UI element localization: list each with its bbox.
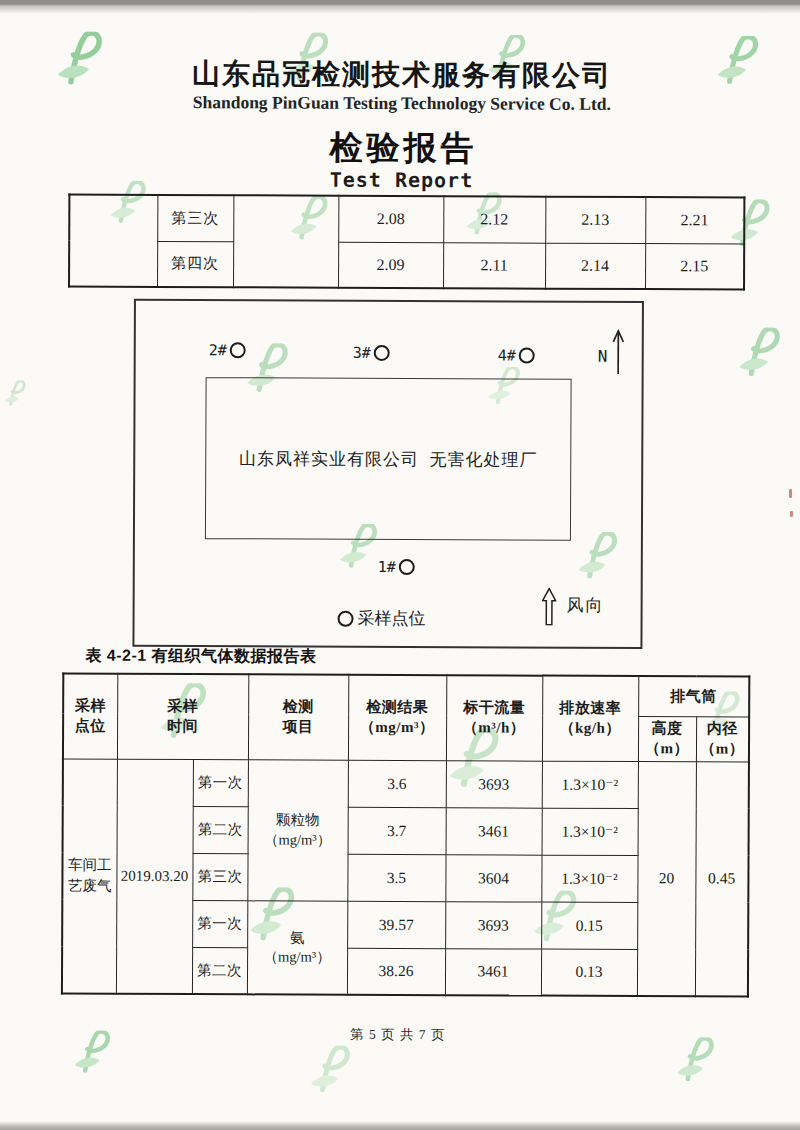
sample-point-4: 4# bbox=[498, 346, 535, 364]
sample-point-3: 3# bbox=[353, 344, 390, 362]
value-cell: 2.09 bbox=[338, 242, 443, 288]
gas-data-table: 采样 点位 采样 时间 检测 项目 检测结果 （mg/m³） 标干流量 （m³/… bbox=[61, 673, 750, 998]
result-cell: 3.7 bbox=[348, 807, 446, 854]
run-cell: 第一次 bbox=[192, 900, 247, 947]
sample-point-label: 2# bbox=[209, 341, 227, 359]
run-label-cell: 第三次 bbox=[157, 195, 233, 241]
sample-point-circle-icon bbox=[399, 559, 415, 575]
stack-diameter-cell: 0.45 bbox=[695, 761, 749, 996]
stack-height-cell: 20 bbox=[637, 761, 696, 996]
run-label-cell: 第四次 bbox=[157, 241, 233, 287]
legend-circle-icon bbox=[338, 610, 354, 626]
wind-direction-arrow-icon bbox=[542, 588, 557, 626]
date-cell: 2019.03.20 bbox=[116, 759, 193, 994]
value-cell: 2.08 bbox=[338, 196, 443, 242]
result-cell: 39.57 bbox=[347, 901, 445, 948]
result-cell: 38.26 bbox=[347, 948, 445, 995]
header-flow: 标干流量 （m³/h） bbox=[446, 675, 542, 760]
legend-label: 采样点位 bbox=[358, 607, 426, 630]
rate-cell: 0.13 bbox=[541, 949, 637, 996]
header-stack: 排气筒 bbox=[638, 676, 749, 716]
item-cell: 颗粒物 （mg/m³） bbox=[247, 759, 348, 900]
flow-cell: 3693 bbox=[445, 901, 541, 948]
result-cell: 3.6 bbox=[348, 760, 446, 807]
value-cell: 2.12 bbox=[443, 196, 545, 242]
north-label: N bbox=[598, 347, 608, 366]
sample-point-circle-icon bbox=[519, 348, 535, 364]
item-cell: 氨 （mg/m³） bbox=[247, 900, 347, 994]
sample-point-2: 2# bbox=[209, 341, 246, 359]
header-sample-time: 采样 时间 bbox=[117, 674, 248, 760]
header-stack-height: 高度 （m） bbox=[638, 716, 696, 761]
report-title-cn: 检验报告 bbox=[2, 124, 800, 172]
empty-cell bbox=[233, 195, 338, 287]
sample-point-label: 4# bbox=[498, 346, 516, 364]
factory-outline: 山东凤祥实业有限公司 无害化处理厂 bbox=[205, 377, 572, 541]
table-row: 第三次 2.08 2.12 2.13 2.21 bbox=[69, 195, 744, 244]
scan-speck bbox=[789, 489, 792, 498]
sample-point-cell: 车间工艺废气 bbox=[62, 759, 117, 994]
legend-sampling-point: 采样点位 bbox=[338, 607, 426, 630]
flow-cell: 3461 bbox=[445, 948, 541, 995]
run-cell: 第一次 bbox=[193, 759, 248, 806]
wind-direction-label: 风向 bbox=[567, 594, 605, 617]
run-cell: 第三次 bbox=[192, 853, 247, 900]
run-cell: 第二次 bbox=[193, 806, 248, 853]
sample-point-circle-icon bbox=[230, 342, 246, 358]
table-row: 车间工艺废气 2019.03.20 第一次 颗粒物 （mg/m³） 3.6 36… bbox=[63, 759, 749, 809]
continuation-table: 第三次 2.08 2.12 2.13 2.21 第四次 2.09 2.11 2.… bbox=[68, 194, 745, 291]
run-cell: 第二次 bbox=[192, 947, 247, 994]
value-cell: 2.15 bbox=[645, 243, 744, 289]
page-number: 第 5 页 共 7 页 bbox=[0, 1024, 798, 1045]
sample-point-circle-icon bbox=[374, 345, 390, 361]
header-item: 检测 项目 bbox=[248, 674, 348, 759]
report-title-en: Test Report bbox=[1, 166, 800, 193]
value-cell: 2.13 bbox=[545, 197, 645, 243]
table-caption: 表 4-2-1 有组织气体数据报告表 bbox=[85, 646, 316, 668]
flow-cell: 3461 bbox=[446, 807, 542, 854]
rate-cell: 1.3×10⁻² bbox=[541, 855, 637, 902]
header-sample-point: 采样 点位 bbox=[63, 674, 117, 759]
sample-point-1: 1# bbox=[378, 558, 415, 576]
table-row: 第四次 2.09 2.11 2.14 2.15 bbox=[69, 241, 744, 290]
flow-cell: 3604 bbox=[445, 854, 541, 901]
factory-label: 山东凤祥实业有限公司 无害化处理厂 bbox=[239, 447, 538, 471]
sample-point-label: 3# bbox=[353, 344, 371, 362]
scan-speck bbox=[790, 511, 793, 517]
report-page: 山东品冠检测技术服务有限公司 Shandong PinGuan Testing … bbox=[0, 0, 800, 1130]
sample-point-label: 1# bbox=[378, 558, 396, 576]
flow-cell: 3693 bbox=[446, 760, 542, 807]
header-rate: 排放速率 （kg/h） bbox=[542, 676, 638, 761]
site-diagram: 山东凤祥实业有限公司 无害化处理厂 2# 3# 4# 1# bbox=[132, 299, 644, 649]
north-arrow-icon bbox=[612, 329, 625, 375]
rate-cell: 1.3×10⁻² bbox=[542, 808, 638, 855]
header-row: 采样 点位 采样 时间 检测 项目 检测结果 （mg/m³） 标干流量 （m³/… bbox=[63, 674, 749, 717]
result-cell: 3.5 bbox=[347, 854, 445, 901]
empty-cell bbox=[69, 195, 157, 287]
company-name-cn: 山东品冠检测技术服务有限公司 bbox=[2, 54, 800, 95]
value-cell: 2.21 bbox=[645, 197, 744, 243]
rate-cell: 1.3×10⁻² bbox=[542, 761, 638, 808]
rate-cell: 0.15 bbox=[541, 902, 637, 949]
header-stack-diameter: 内径 （m） bbox=[696, 716, 749, 761]
company-name-en: Shandong PinGuan Testing Technology Serv… bbox=[2, 91, 800, 115]
value-cell: 2.14 bbox=[545, 243, 645, 289]
header-result: 检测结果 （mg/m³） bbox=[348, 675, 446, 760]
scanner-edge-bottom bbox=[0, 1121, 800, 1130]
scanner-edge-top bbox=[0, 0, 800, 14]
value-cell: 2.11 bbox=[443, 242, 545, 288]
